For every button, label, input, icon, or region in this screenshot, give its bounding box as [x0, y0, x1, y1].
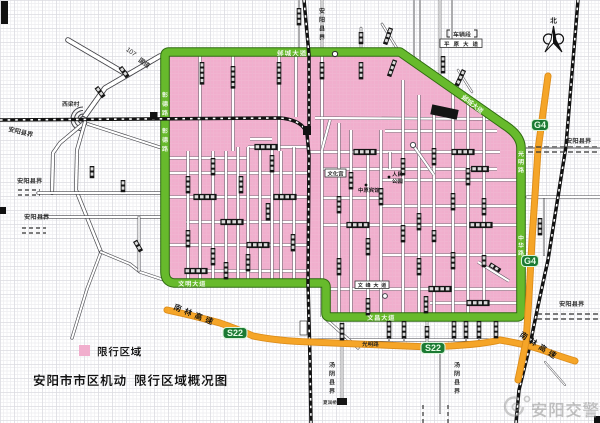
svg-text:S22: S22: [227, 328, 243, 338]
svg-text:G4: G4: [524, 256, 536, 266]
svg-text:S22: S22: [425, 343, 441, 353]
svg-text:G4: G4: [534, 120, 546, 130]
